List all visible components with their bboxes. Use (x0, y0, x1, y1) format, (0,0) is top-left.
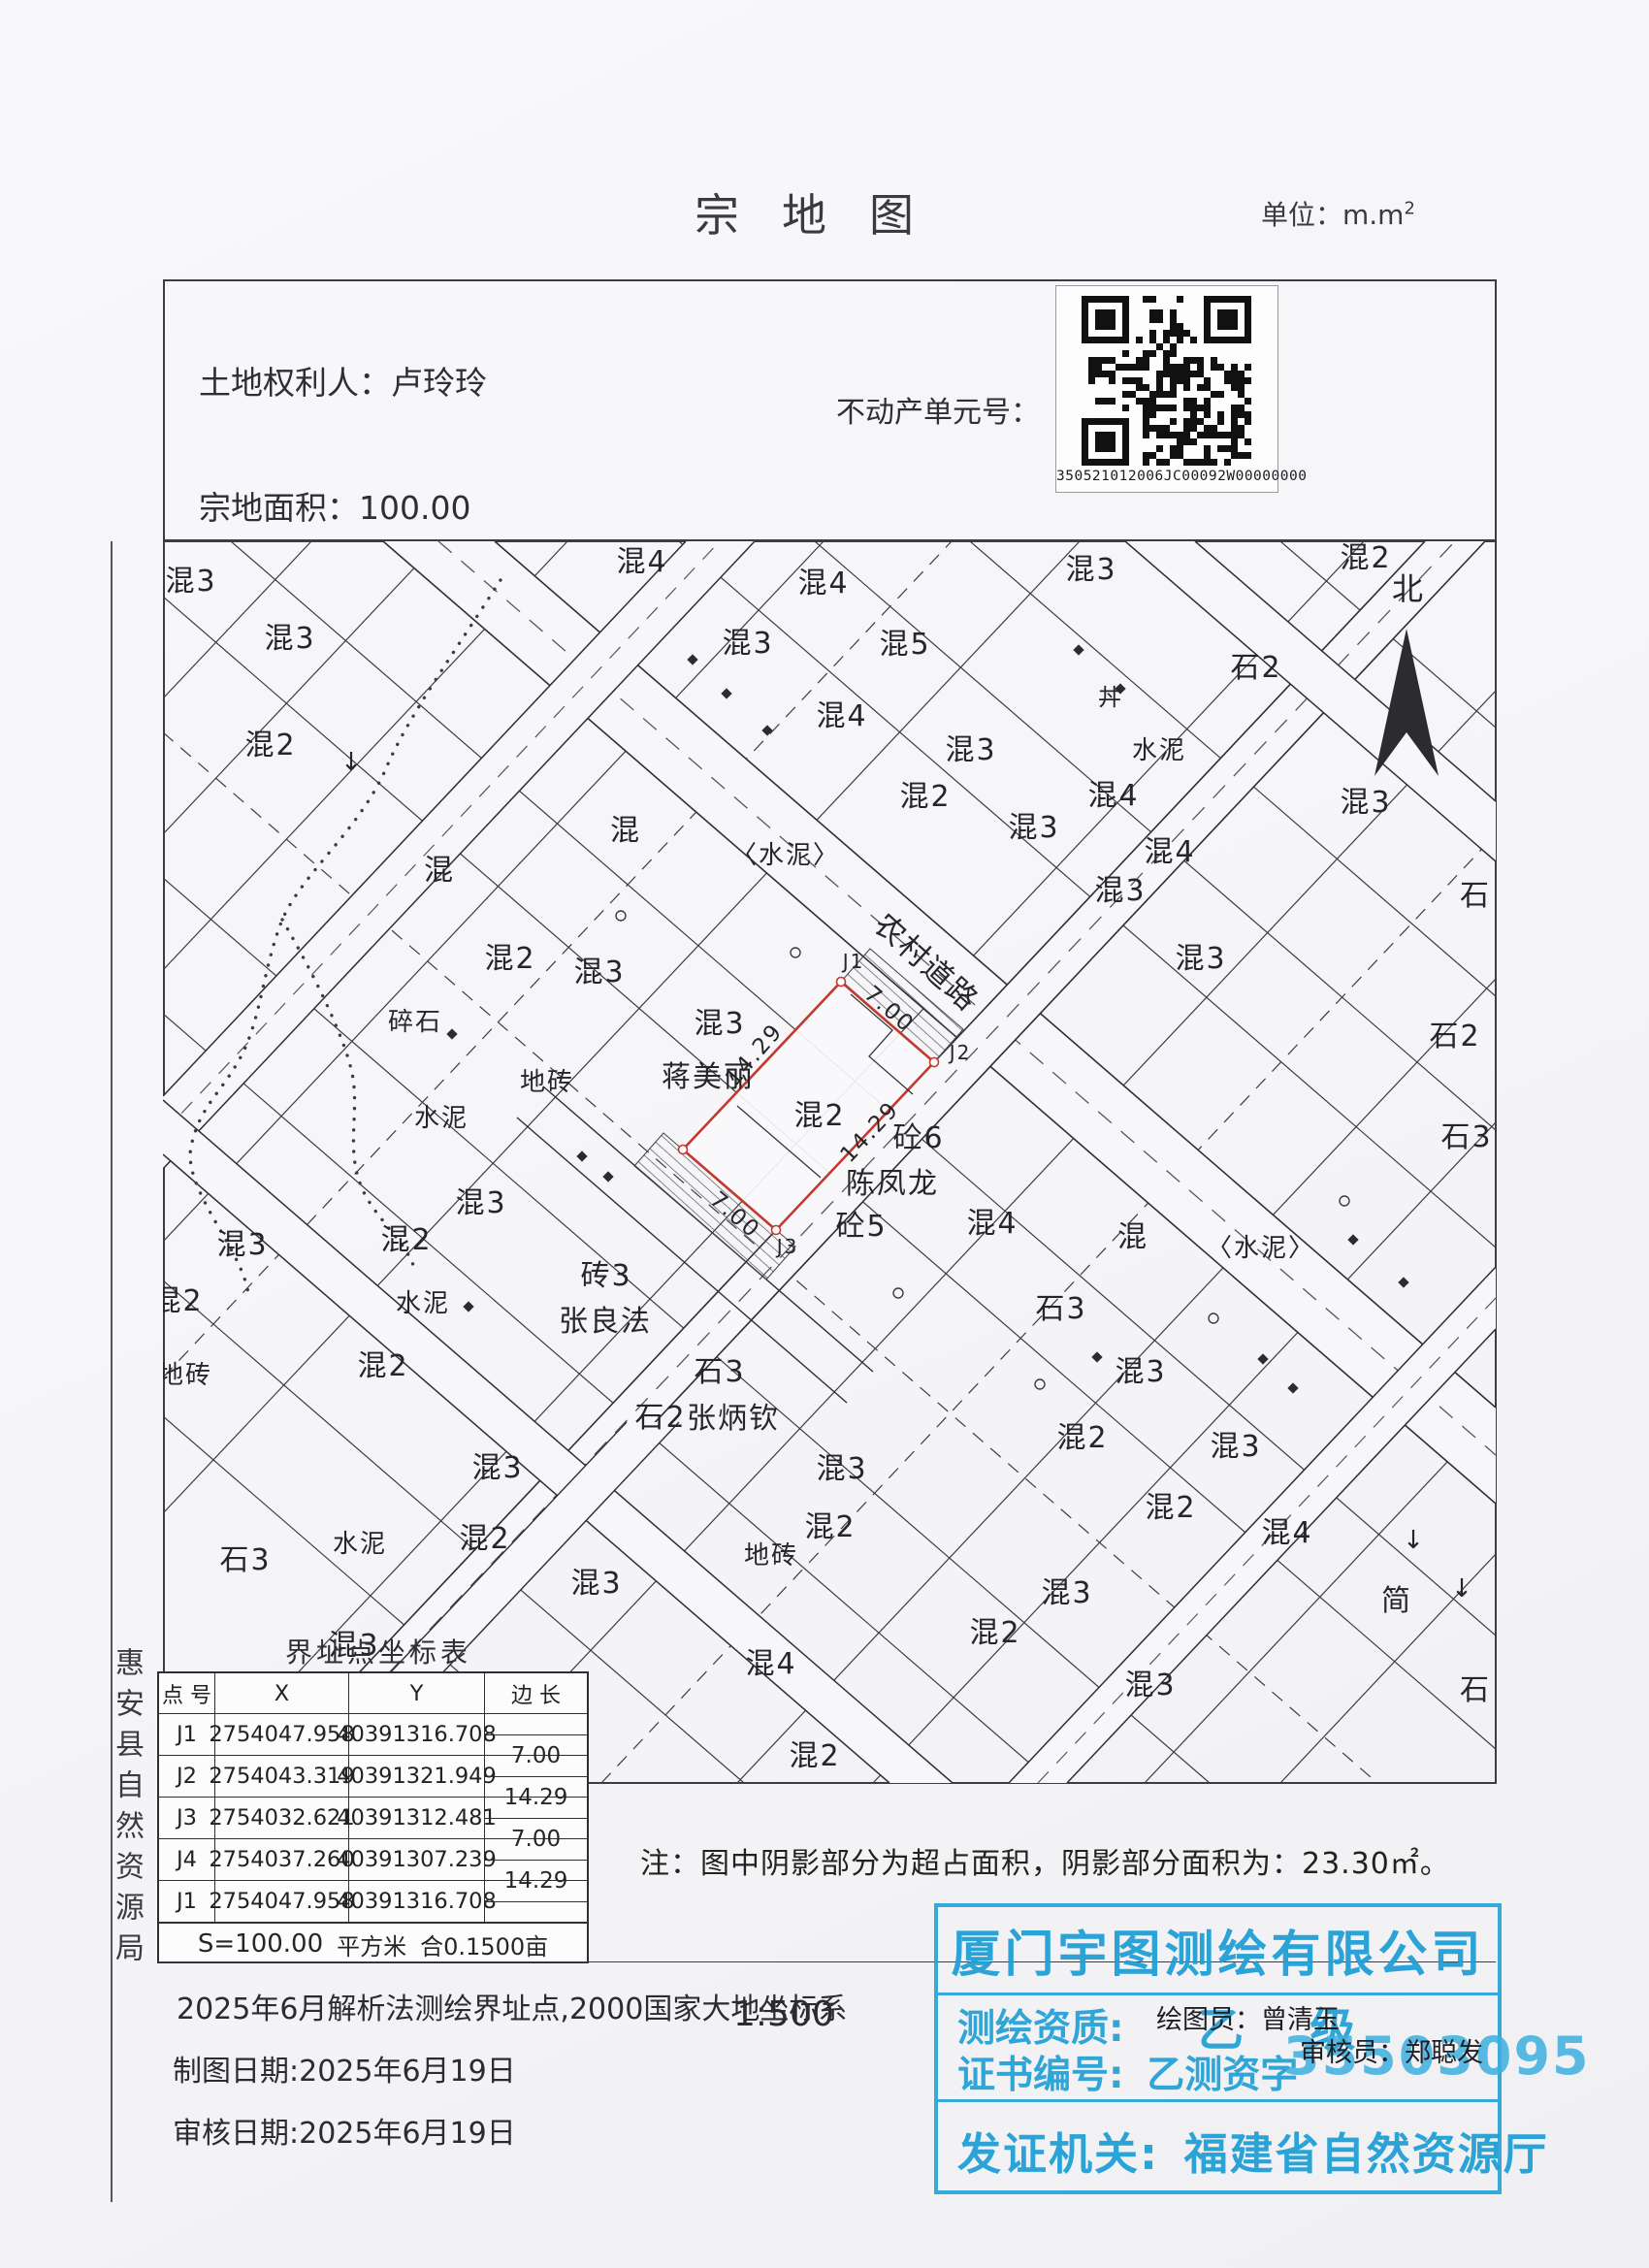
map-label: 混2 (1145, 1491, 1196, 1525)
map-label: 混3 (1094, 874, 1146, 908)
map-label: 混3 (1124, 1669, 1176, 1702)
map-label: 水泥 (414, 1104, 469, 1133)
map-label: 〈水泥〉 (1207, 1234, 1315, 1263)
map-label: 石3 (219, 1543, 271, 1577)
map-label: 混3 (1210, 1430, 1261, 1464)
document-title: 宗地图 (695, 180, 956, 244)
reviewer-name: 郑聪发 (1405, 2038, 1483, 2068)
map-label: J3 (775, 1235, 799, 1258)
parcel-map: 混3混3混2混混2混混3水泥混4混4混3混5混4混3混2混3〈水泥〉农村道路混3… (163, 541, 1496, 1783)
stamp-company-name: 厦门宇图测绘有限公司 (951, 1914, 1484, 1986)
map-label: 石3 (1035, 1292, 1086, 1326)
agency-vertical-label: 惠安县自然资源局 (105, 1647, 147, 1987)
stamp-issuer-band: 发证机关: 福建省自然资源厅 (938, 2099, 1498, 2197)
map-label: 陈凤龙 (846, 1167, 939, 1201)
owner-value: 卢玲玲 (391, 364, 487, 402)
map-label: 混3 (1175, 942, 1226, 976)
draw-date-line: 制图日期:2025年6月19日 (173, 2047, 516, 2090)
coord-y: 40391316.708 (349, 1881, 485, 1922)
coordinate-table: 点 号 X Y 边 长 J12754047.95840391316.708J22… (157, 1671, 589, 1963)
owner-label: 土地权利人： (199, 364, 391, 402)
map-label: 张炳钦 (687, 1402, 780, 1436)
map-label: 混4 (1087, 779, 1139, 813)
stamp-issuer-line: 发证机关: 福建省自然资源厅 (957, 2119, 1549, 2182)
map-label: 水泥 (1132, 736, 1186, 765)
map-label: 混2 (789, 1739, 840, 1773)
map-label: 水泥 (396, 1289, 450, 1318)
review-date: 2025年6月19日 (299, 2117, 516, 2151)
map-label: 混3 (570, 1567, 622, 1601)
point-id: J1 (159, 1714, 215, 1755)
scanned-parcel-map-document: 宗地图 单位：m.m2 惠安县自然资源局 土地权利人：卢玲玲 宗地面积：100.… (0, 0, 1649, 2268)
map-label: 混3 (1041, 1576, 1092, 1610)
map-label: 混2 (793, 1099, 845, 1133)
area-value: 100.00 (359, 489, 470, 527)
map-label: 混4 (745, 1647, 796, 1681)
map-label: 地砖 (744, 1541, 798, 1571)
map-label: 地砖 (163, 1361, 212, 1390)
unit-no-label: 不动产单元号： (836, 388, 1040, 431)
map-label: 混2 (459, 1522, 510, 1556)
map-label: 混4 (816, 699, 867, 733)
area-formula: S=100.00 (198, 1929, 323, 1959)
map-label: 混 (1117, 1220, 1148, 1254)
map-scale: 1:500 (733, 1994, 834, 2034)
coord-x: 2754037.260 (215, 1839, 349, 1880)
map-label: 混2 (357, 1349, 408, 1383)
map-label: 混2 (804, 1510, 856, 1544)
point-id: J4 (159, 1839, 215, 1880)
header-edge: 边 长 (485, 1673, 587, 1713)
reviewer-label: 审核员： (1300, 2038, 1405, 2068)
shaded-area-note: 注：图中阴影部分为超占面积，阴影部分面积为：23.30㎡。 (640, 1839, 1450, 1882)
map-label: 混2 (1340, 541, 1391, 575)
map-label: 地砖 (520, 1068, 574, 1097)
map-label: 混3 (722, 627, 773, 661)
map-label: 混5 (879, 628, 930, 662)
map-label: 混3 (573, 956, 625, 989)
drafter-label: 绘图员： (1156, 2005, 1261, 2035)
map-label: 混4 (1261, 1516, 1312, 1550)
coordinate-table-title: 界址点坐标表 (262, 1632, 495, 1670)
coord-y: 40391321.949 (349, 1756, 485, 1797)
map-label: ↓ (1451, 1574, 1474, 1604)
point-id: J1 (159, 1881, 215, 1922)
map-label: 混3 (945, 733, 996, 767)
owner-line: 土地权利人：卢玲玲 (199, 357, 487, 404)
map-label: ↓ (340, 748, 364, 777)
area-mu: 合0.1500亩 (420, 1928, 548, 1961)
map-label: 混3 (165, 565, 216, 599)
map-label: 混4 (797, 567, 849, 600)
map-label: J2 (948, 1041, 972, 1064)
map-label: 混2 (899, 780, 951, 814)
map-label: 混 (424, 854, 455, 888)
edge-length-column: 7.0014.297.0014.29 (485, 1714, 587, 1923)
qr-block: 350521012006JC00092W00000000 (1055, 285, 1278, 493)
map-label: 石 (1460, 879, 1491, 913)
map-label: 石2 (1230, 651, 1281, 685)
map-label: 混3 (694, 1007, 745, 1041)
stamp-company-band: 厦门宇图测绘有限公司 (938, 1907, 1498, 1995)
map-label: 混3 (216, 1228, 268, 1262)
edge-length: 14.29 (485, 1777, 587, 1819)
map-label: 混3 (455, 1186, 506, 1220)
map-label: 张良法 (559, 1305, 652, 1339)
map-label: J1 (841, 950, 865, 973)
area-line: 宗地面积：100.00 (199, 482, 470, 529)
qr-code-icon (1082, 296, 1251, 466)
map-label: 混3 (471, 1451, 523, 1485)
map-label: 混4 (1144, 835, 1195, 869)
map-label: 石3 (1440, 1120, 1492, 1154)
map-label: 混4 (966, 1207, 1018, 1241)
map-label: 〈水泥〉 (731, 841, 840, 870)
point-id: J3 (159, 1798, 215, 1838)
map-label: 石 (1460, 1673, 1491, 1707)
map-label: 混2 (163, 1284, 204, 1318)
unit-note: 单位：m.m2 (1261, 194, 1415, 233)
stamp-cert-line: 证书编号: 乙测资字 (957, 2045, 1298, 2099)
point-id: J2 (159, 1756, 215, 1797)
real-estate-unit-number: 350521012006JC00092W00000000 (1056, 469, 1277, 484)
map-label: 混2 (969, 1616, 1020, 1650)
map-label: 碎石 (388, 1008, 442, 1037)
map-label: 混3 (1340, 786, 1391, 820)
review-date-label: 审核日期: (173, 2117, 299, 2151)
map-label: 混3 (1008, 811, 1059, 845)
map-label: 北 (1392, 570, 1425, 607)
coord-x: 2754043.319 (215, 1756, 349, 1797)
area-summary-row: S=100.00 平方米 合0.1500亩 (159, 1923, 587, 1964)
map-label: 混 (610, 814, 641, 848)
reviewer-line: 审核员：郑聪发 (1300, 2031, 1483, 2069)
coord-y: 40391316.708 (349, 1714, 485, 1755)
map-label: 混2 (244, 729, 296, 762)
map-label: ↓ (1403, 1526, 1426, 1555)
map-label: 混3 (1065, 553, 1116, 587)
map-label: 简 (1381, 1584, 1412, 1618)
map-label: 混2 (380, 1223, 432, 1257)
unit-superscript: 2 (1404, 199, 1414, 219)
map-label: 砼5 (835, 1210, 887, 1244)
area-unit: 平方米 (337, 1928, 406, 1961)
map-label: 混2 (1056, 1421, 1108, 1455)
map-label: 混3 (264, 622, 315, 656)
map-label: 石3 (694, 1355, 745, 1389)
stamp-issuer-label: 发证机关: (957, 2128, 1159, 2180)
header-y: Y (349, 1673, 485, 1713)
table-header-row: 点 号 X Y 边 长 (159, 1673, 587, 1714)
map-label: 砼6 (892, 1121, 944, 1155)
edge-length: 7.00 (485, 1735, 587, 1777)
area-label: 宗地面积： (199, 489, 359, 527)
stamp-issuer-value: 福建省自然资源厅 (1184, 2128, 1549, 2180)
map-label: 水泥 (333, 1530, 387, 1559)
coord-x: 2754047.958 (215, 1714, 349, 1755)
edge-length: 14.29 (485, 1861, 587, 1902)
coord-y: 40391307.239 (349, 1839, 485, 1880)
map-label: 丼 (1098, 684, 1123, 711)
map-label: 砖3 (580, 1259, 631, 1293)
review-date-line: 审核日期:2025年6月19日 (173, 2109, 516, 2152)
coord-x: 2754032.621 (215, 1798, 349, 1838)
draw-date: 2025年6月19日 (299, 2055, 516, 2089)
stamp-cert-label: 证书编号: (957, 2054, 1124, 2097)
map-label: 混3 (816, 1452, 867, 1486)
map-label: 石2 (1429, 1020, 1480, 1053)
coord-y: 40391312.481 (349, 1798, 485, 1838)
header-x: X (215, 1673, 349, 1713)
map-label: 混3 (1115, 1355, 1166, 1389)
header-point: 点 号 (159, 1673, 215, 1713)
stamp-cert-prefix: 乙测资字 (1147, 2054, 1298, 2097)
coord-x: 2754047.958 (215, 1881, 349, 1922)
edge-length: 7.00 (485, 1819, 587, 1861)
map-label: 混4 (616, 545, 667, 579)
map-label: 石2 (634, 1401, 686, 1435)
map-label: 混2 (484, 942, 535, 976)
draw-date-label: 制图日期: (173, 2055, 299, 2089)
